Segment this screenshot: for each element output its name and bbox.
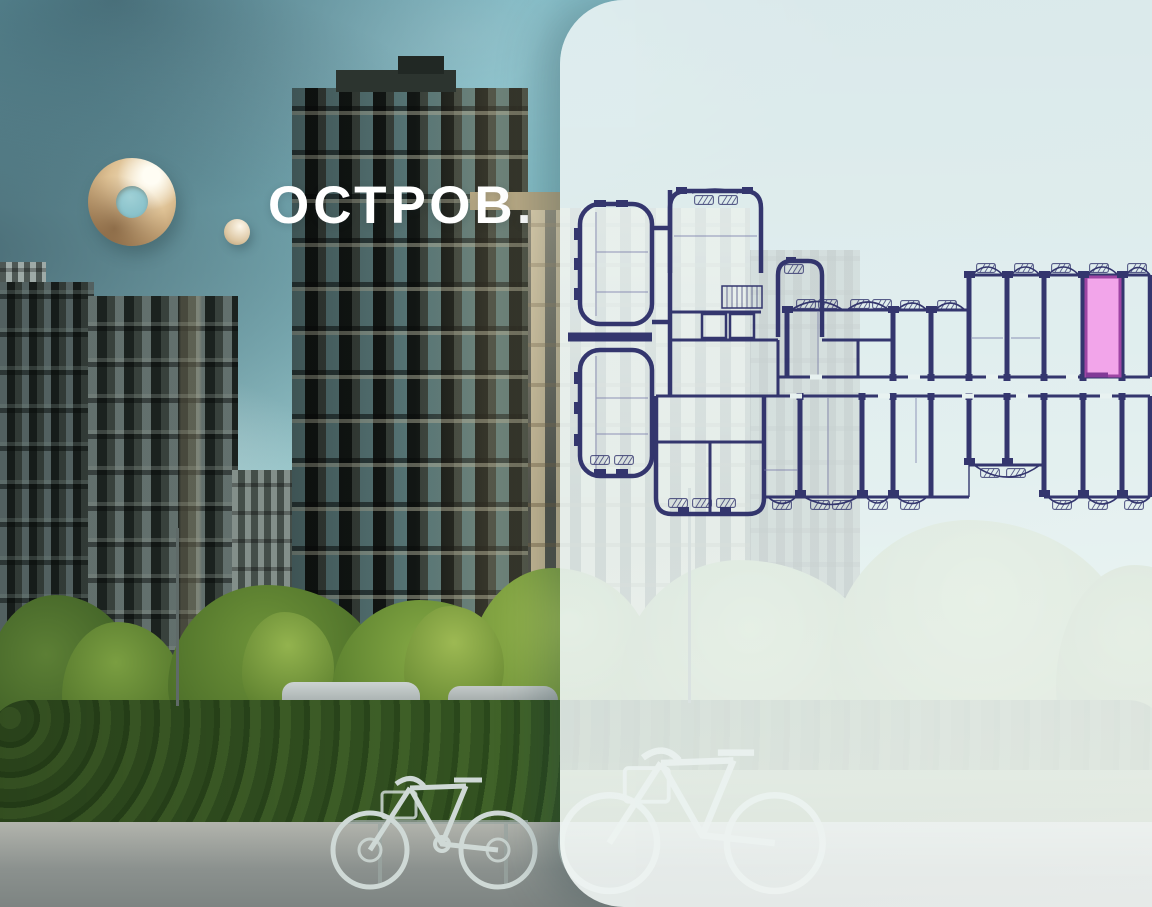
street-light bbox=[176, 528, 179, 706]
logo-dot-icon bbox=[224, 219, 250, 245]
app-screen: ОСТРОВ. bbox=[0, 0, 1152, 907]
unit-info-panel: 1 КОРПУС 2 СЕКЦИЯ 9 ЭТАЖ bbox=[560, 0, 1152, 907]
logo-ring-icon bbox=[88, 158, 176, 246]
brand-logo: ОСТРОВ. bbox=[0, 0, 560, 280]
bicycle-icon bbox=[318, 702, 550, 894]
selected-unit[interactable] bbox=[1086, 277, 1120, 376]
brand-name: ОСТРОВ. bbox=[268, 179, 535, 232]
floorplan bbox=[560, 0, 1152, 907]
logo-ring-hole bbox=[116, 186, 148, 218]
